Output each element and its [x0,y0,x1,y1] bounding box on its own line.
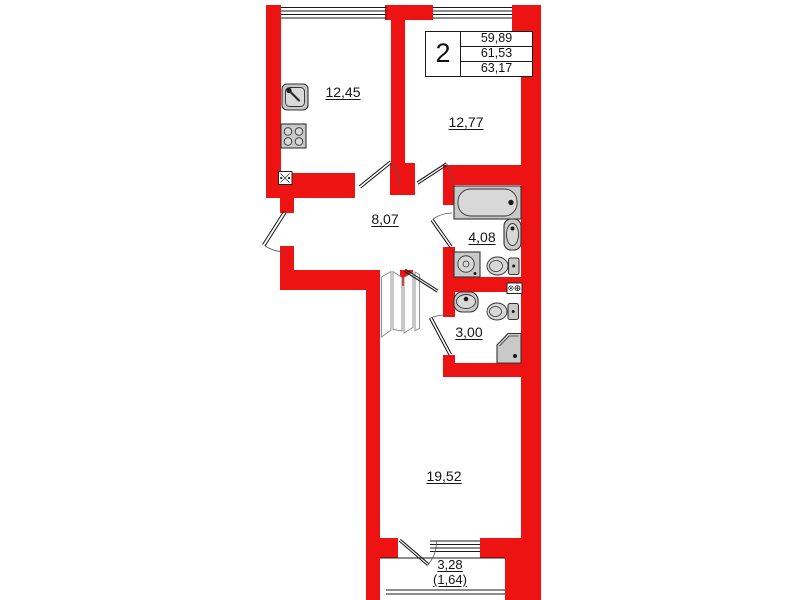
wall-hall-bottom [280,270,380,290]
shower-cabin-icon [497,334,521,364]
wall-entry-stub-upper [280,198,294,213]
wall-bathroom-left-lower [443,247,455,277]
area-label-wc: 3,00 [439,325,499,339]
wall-bathroom-wc-divider [443,277,521,292]
area-label-bathroom: 4,08 [452,230,512,244]
wall-wc-bottom [443,363,521,377]
wall-entry-stub-lower [280,246,294,272]
window-living-room [430,541,480,552]
area-label-kitchen: 12,45 [313,85,373,99]
wall-living-bottom-left-pier [366,538,398,558]
wall-corridor-stub [400,270,413,286]
wall-kitchen-bottom [266,173,355,198]
window-room [433,8,512,19]
kitchen-sink-icon [282,84,308,110]
toilet-icon [487,257,519,275]
wall-bathroom-left-upper [443,185,455,205]
floor-plan: 12,45 12,77 8,07 4,08 3,00 19,52 3,28 (1… [0,0,800,600]
bathroom-door [431,213,452,248]
wall-left [266,5,281,198]
window-kitchen [281,8,387,19]
area-label-room: 12,77 [436,115,496,129]
title-block: 2 59,89 61,53 63,17 [425,31,533,77]
title-block-rooms-count: 2 [426,32,461,76]
wall-balcony-right [505,538,521,600]
wall-wc-left-upper [443,292,455,317]
washing-machine-icon [454,252,480,277]
title-block-area-value: 61,53 [461,47,532,62]
bathtub-icon [454,186,521,219]
area-label-hallway: 8,07 [355,212,415,226]
washbasin-icon [454,292,478,312]
stove-icon [281,124,306,148]
title-block-area-value: 59,89 [461,32,532,47]
title-block-area-value: 63,17 [461,62,532,76]
wall-right [521,5,541,600]
area-label-balcony: 3,28 (1,64) [420,558,480,587]
wall-hall-top-pier [390,163,415,195]
toilet-icon [487,303,519,320]
title-block-areas: 59,89 61,53 63,17 [461,32,532,76]
area-label-living-room: 19,52 [414,469,474,483]
wall-room-bathroom-divider [443,165,521,185]
wall-kitchen-room-divider [391,10,405,168]
